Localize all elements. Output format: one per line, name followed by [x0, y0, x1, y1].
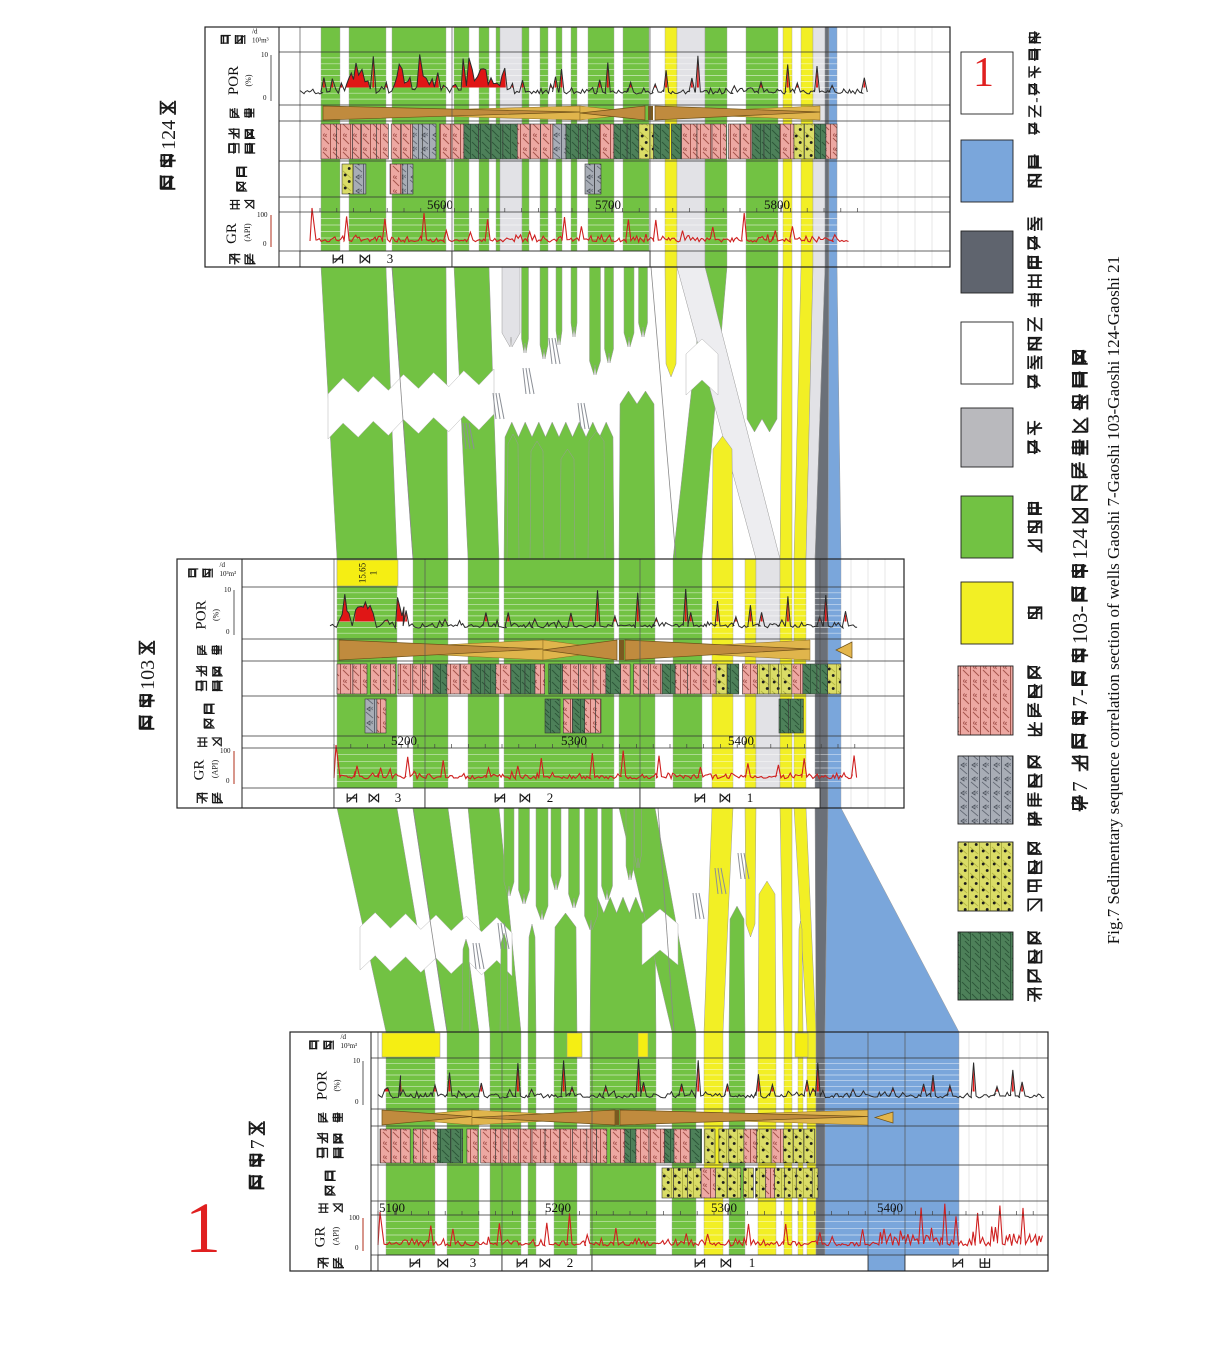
svg-text:10: 10: [224, 586, 232, 594]
svg-text:/d: /d: [341, 1033, 347, 1041]
svg-text:103-: 103-: [1068, 606, 1092, 645]
svg-text:2: 2: [547, 790, 554, 805]
svg-text:5400: 5400: [877, 1200, 903, 1215]
svg-text:1: 1: [369, 571, 379, 576]
svg-text:0: 0: [263, 240, 267, 248]
svg-text:100: 100: [257, 211, 268, 219]
svg-text:5100: 5100: [379, 1200, 405, 1215]
svg-text:3: 3: [470, 1255, 477, 1270]
svg-text:POR: POR: [194, 600, 210, 629]
svg-text:124: 124: [158, 120, 180, 150]
svg-text:10³m³: 10³m³: [220, 570, 237, 578]
svg-text:1: 1: [973, 50, 994, 96]
svg-text:10: 10: [353, 1057, 361, 1065]
svg-text:10³m³: 10³m³: [341, 1042, 358, 1050]
svg-text:5200: 5200: [391, 733, 417, 748]
svg-text:(API): (API): [211, 760, 220, 779]
svg-text:10: 10: [261, 51, 269, 59]
svg-text:0: 0: [226, 628, 230, 636]
svg-text:2: 2: [567, 1255, 574, 1270]
svg-text:1: 1: [185, 1188, 221, 1268]
svg-text:103: 103: [137, 660, 159, 690]
svg-text:0: 0: [355, 1098, 359, 1106]
svg-text:15.65: 15.65: [358, 562, 368, 583]
svg-text:1: 1: [749, 1255, 756, 1270]
svg-text:5400: 5400: [728, 733, 754, 748]
svg-text:10³m³: 10³m³: [252, 37, 269, 45]
svg-text:(API): (API): [243, 223, 252, 242]
svg-text:(%): (%): [333, 1079, 342, 1091]
svg-text:/d: /d: [252, 28, 258, 36]
svg-text:5600: 5600: [427, 197, 453, 212]
svg-text:0: 0: [355, 1244, 359, 1252]
svg-text:7-: 7-: [1068, 689, 1092, 707]
svg-text:GR: GR: [224, 223, 240, 244]
svg-text:(%): (%): [212, 609, 221, 621]
svg-text:100: 100: [220, 747, 231, 755]
svg-text:5200: 5200: [545, 1200, 571, 1215]
svg-text:-: -: [1027, 97, 1044, 102]
svg-text:7: 7: [247, 1139, 269, 1149]
svg-text:(API): (API): [332, 1227, 341, 1246]
svg-text:GR: GR: [192, 760, 208, 781]
svg-text:5700: 5700: [595, 197, 621, 212]
svg-text:124: 124: [1068, 528, 1092, 560]
svg-text:POR: POR: [226, 66, 242, 95]
svg-text:POR: POR: [315, 1071, 331, 1100]
svg-text:GR: GR: [313, 1227, 329, 1248]
svg-text:5800: 5800: [764, 197, 790, 212]
svg-text:3: 3: [395, 790, 402, 805]
svg-text:5300: 5300: [561, 733, 587, 748]
svg-text:0: 0: [226, 777, 230, 785]
svg-text:1: 1: [747, 790, 754, 805]
svg-text:0: 0: [263, 94, 267, 102]
svg-text:/d: /d: [220, 561, 226, 569]
svg-text:3: 3: [387, 251, 394, 266]
svg-text:100: 100: [349, 1214, 360, 1222]
svg-text:7: 7: [1068, 781, 1092, 792]
svg-text:5300: 5300: [711, 1200, 737, 1215]
svg-text:Fig.7 Sedimentary sequence c: Fig.7 Sedimentary sequence correlation s…: [1104, 256, 1123, 944]
svg-text:(%): (%): [244, 74, 253, 86]
